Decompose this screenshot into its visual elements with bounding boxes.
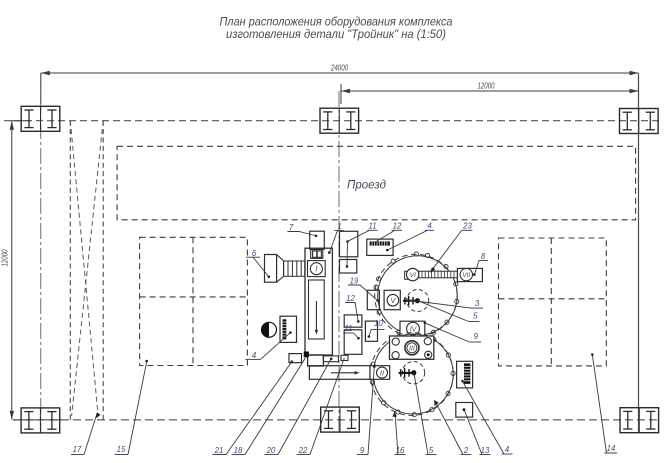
svg-text:9: 9: [360, 446, 365, 455]
svg-text:VII: VII: [462, 272, 470, 279]
svg-text:12000: 12000: [478, 81, 495, 91]
svg-text:7: 7: [289, 223, 294, 232]
svg-text:II: II: [380, 368, 384, 377]
svg-text:20: 20: [266, 446, 276, 455]
svg-text:14: 14: [607, 444, 616, 453]
svg-text:2: 2: [463, 446, 469, 455]
svg-text:10: 10: [374, 319, 383, 328]
svg-text:8: 8: [481, 252, 486, 261]
svg-text:22: 22: [298, 446, 308, 455]
svg-text:19: 19: [350, 277, 359, 286]
svg-text:4: 4: [252, 351, 257, 360]
svg-text:изготовления детали "Тройник": изготовления детали "Тройник" на (1:50): [226, 29, 446, 41]
svg-text:4: 4: [427, 222, 432, 231]
svg-text:6: 6: [252, 249, 257, 258]
svg-text:18: 18: [234, 446, 243, 455]
svg-text:23: 23: [462, 222, 472, 231]
svg-text:5: 5: [473, 311, 478, 320]
svg-text:1: 1: [337, 222, 341, 231]
svg-text:5: 5: [429, 446, 434, 455]
svg-text:17: 17: [73, 445, 82, 454]
svg-text:9: 9: [474, 332, 479, 341]
svg-text:12000: 12000: [0, 249, 10, 266]
svg-text:4: 4: [505, 445, 510, 454]
svg-text:12: 12: [393, 222, 402, 231]
svg-text:План расположения оборудования: План расположения оборудования комплекса: [220, 17, 453, 29]
svg-text:III: III: [409, 345, 415, 352]
svg-text:Проезд: Проезд: [347, 180, 386, 192]
svg-text:12: 12: [346, 294, 355, 303]
svg-text:V: V: [390, 296, 396, 305]
svg-text:24000: 24000: [330, 63, 348, 73]
svg-text:3: 3: [475, 299, 480, 308]
svg-text:VI: VI: [410, 272, 416, 279]
svg-text:21: 21: [214, 446, 224, 455]
svg-text:11: 11: [368, 222, 376, 231]
svg-text:11: 11: [344, 324, 352, 333]
svg-text:15: 15: [117, 445, 126, 454]
svg-text:I: I: [315, 265, 318, 274]
